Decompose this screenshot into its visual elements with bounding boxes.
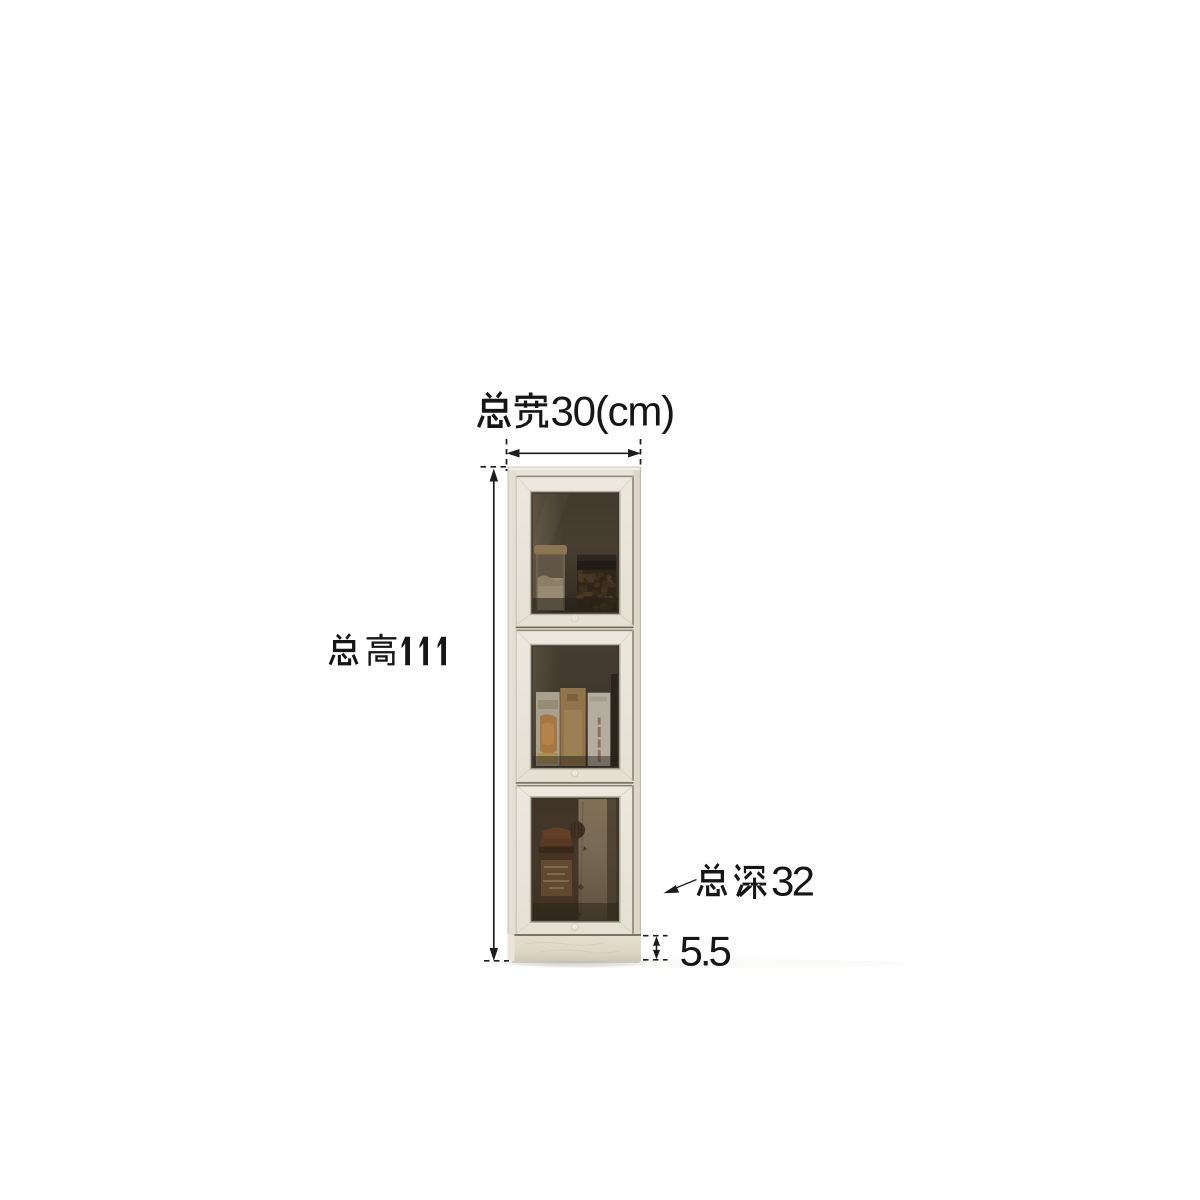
svg-text:30(cm): 30(cm) [551, 388, 674, 435]
svg-text:5.5: 5.5 [680, 928, 731, 975]
svg-text:32: 32 [771, 857, 814, 904]
